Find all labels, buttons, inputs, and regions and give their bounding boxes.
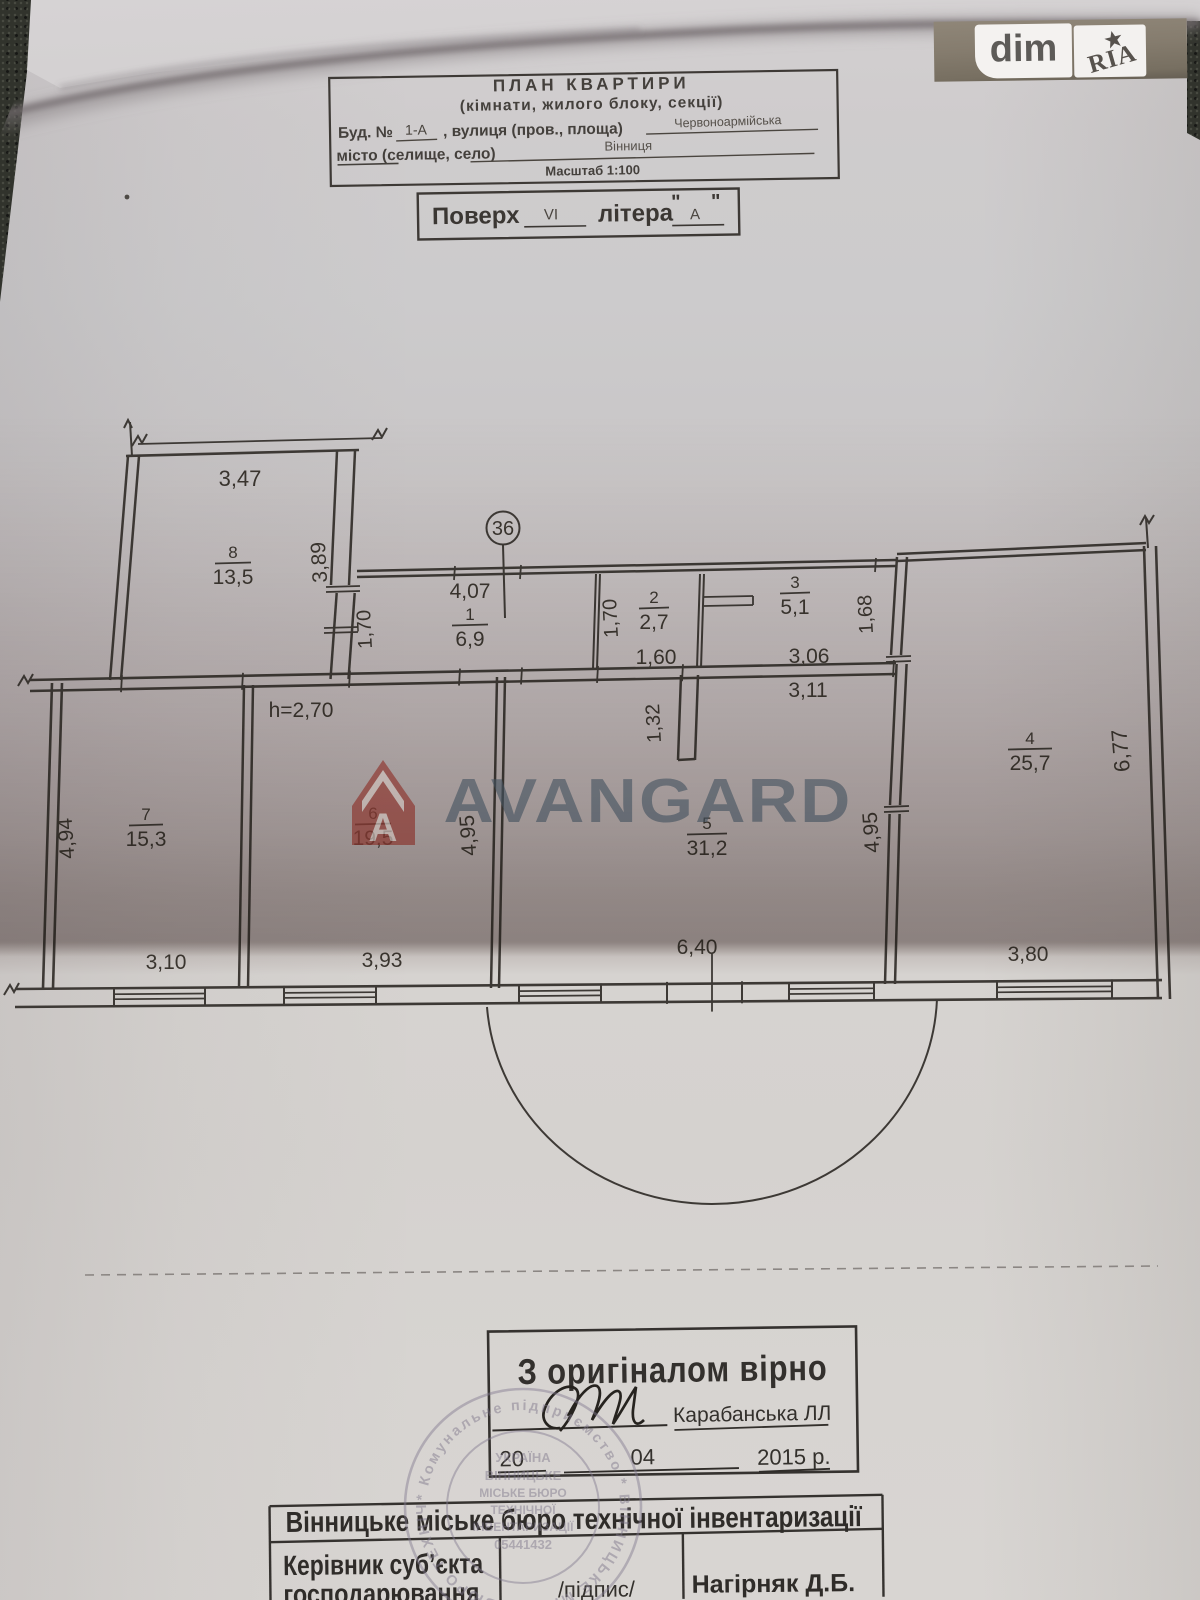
svg-text:8: 8 xyxy=(228,543,237,562)
svg-text:4: 4 xyxy=(1025,729,1034,748)
svg-text:Буд. №: Буд. № xyxy=(338,124,393,142)
svg-text:3,11: 3,11 xyxy=(788,679,827,702)
svg-text:1: 1 xyxy=(465,605,474,624)
svg-text:1,68: 1,68 xyxy=(854,594,878,634)
svg-text:3,10: 3,10 xyxy=(146,951,187,974)
svg-text:Масштаб 1:100: Масштаб 1:100 xyxy=(545,162,640,178)
svg-text:Поверх: Поверх xyxy=(432,202,520,230)
svg-text:Карабанська ЛЛ: Карабанська ЛЛ xyxy=(673,1402,832,1427)
svg-text:5,1: 5,1 xyxy=(780,596,809,619)
svg-text:25,7: 25,7 xyxy=(1010,752,1051,775)
svg-text:, вулиця (пров., площа): , вулиця (пров., площа) xyxy=(443,120,623,140)
svg-text:7: 7 xyxy=(141,805,150,824)
svg-text:3,89: 3,89 xyxy=(307,541,332,583)
svg-text:": " xyxy=(711,191,721,213)
svg-text:13,5: 13,5 xyxy=(213,566,254,589)
svg-text:AVANGARD: AVANGARD xyxy=(444,767,853,836)
svg-text:2015 р.: 2015 р. xyxy=(757,1444,831,1470)
svg-text:1,32: 1,32 xyxy=(642,703,666,743)
svg-text:36: 36 xyxy=(492,518,514,540)
svg-text:31,2: 31,2 xyxy=(687,837,728,860)
svg-text:Вінниця: Вінниця xyxy=(604,138,652,154)
svg-text:4,95: 4,95 xyxy=(859,811,885,853)
svg-text:2: 2 xyxy=(649,588,658,607)
svg-text:ПЛАН КВАРТИРИ: ПЛАН КВАРТИРИ xyxy=(493,73,690,95)
svg-text:3,93: 3,93 xyxy=(362,949,403,972)
svg-text:6,77: 6,77 xyxy=(1106,728,1135,773)
svg-text:(кімнати, жилого блоку, секції: (кімнати, жилого блоку, секції) xyxy=(460,94,724,115)
svg-text:4,94: 4,94 xyxy=(54,817,80,860)
svg-text:1,60: 1,60 xyxy=(636,646,677,669)
svg-text:А: А xyxy=(690,206,700,223)
svg-text:ВІННИЦЬКЕ: ВІННИЦЬКЕ xyxy=(485,1468,562,1483)
svg-text:2,7: 2,7 xyxy=(639,611,668,634)
svg-text:3,80: 3,80 xyxy=(1008,943,1049,966)
svg-text:літера: літера xyxy=(598,199,674,227)
svg-text:ТЕХНІЧНОЇ: ТЕХНІЧНОЇ xyxy=(490,1502,556,1517)
svg-text:VI: VI xyxy=(544,206,558,223)
svg-text:": " xyxy=(671,191,681,213)
svg-text:Нагірняк Д.Б.: Нагірняк Д.Б. xyxy=(692,1569,856,1599)
svg-text:Червоноармійська: Червоноармійська xyxy=(674,113,782,131)
svg-text:6,40: 6,40 xyxy=(677,936,718,959)
svg-text:1,70: 1,70 xyxy=(599,598,623,638)
svg-text:05441432: 05441432 xyxy=(494,1537,552,1552)
svg-text:Вінницьке міське бюро технічно: Вінницьке міське бюро технічної інвентар… xyxy=(286,1501,863,1539)
svg-text:15,3: 15,3 xyxy=(126,828,167,851)
svg-text:3: 3 xyxy=(790,573,799,592)
svg-text:ІНВЕНТАРИЗАЦІЇ: ІНВЕНТАРИЗАЦІЇ xyxy=(473,1519,574,1534)
svg-text:1-А: 1-А xyxy=(405,121,428,137)
svg-text:h=2,70: h=2,70 xyxy=(269,699,334,722)
svg-text:1,70: 1,70 xyxy=(353,609,377,649)
svg-text:A: A xyxy=(369,806,398,850)
svg-text:6,9: 6,9 xyxy=(455,628,484,651)
svg-text:УКРАЇНА: УКРАЇНА xyxy=(495,1450,551,1465)
svg-text:4,07: 4,07 xyxy=(450,580,491,603)
svg-text:3,47: 3,47 xyxy=(219,466,262,491)
svg-text:МІСЬКЕ БЮРО: МІСЬКЕ БЮРО xyxy=(479,1486,566,1500)
svg-text:З оригіналом вірно: З оригіналом вірно xyxy=(517,1347,828,1392)
